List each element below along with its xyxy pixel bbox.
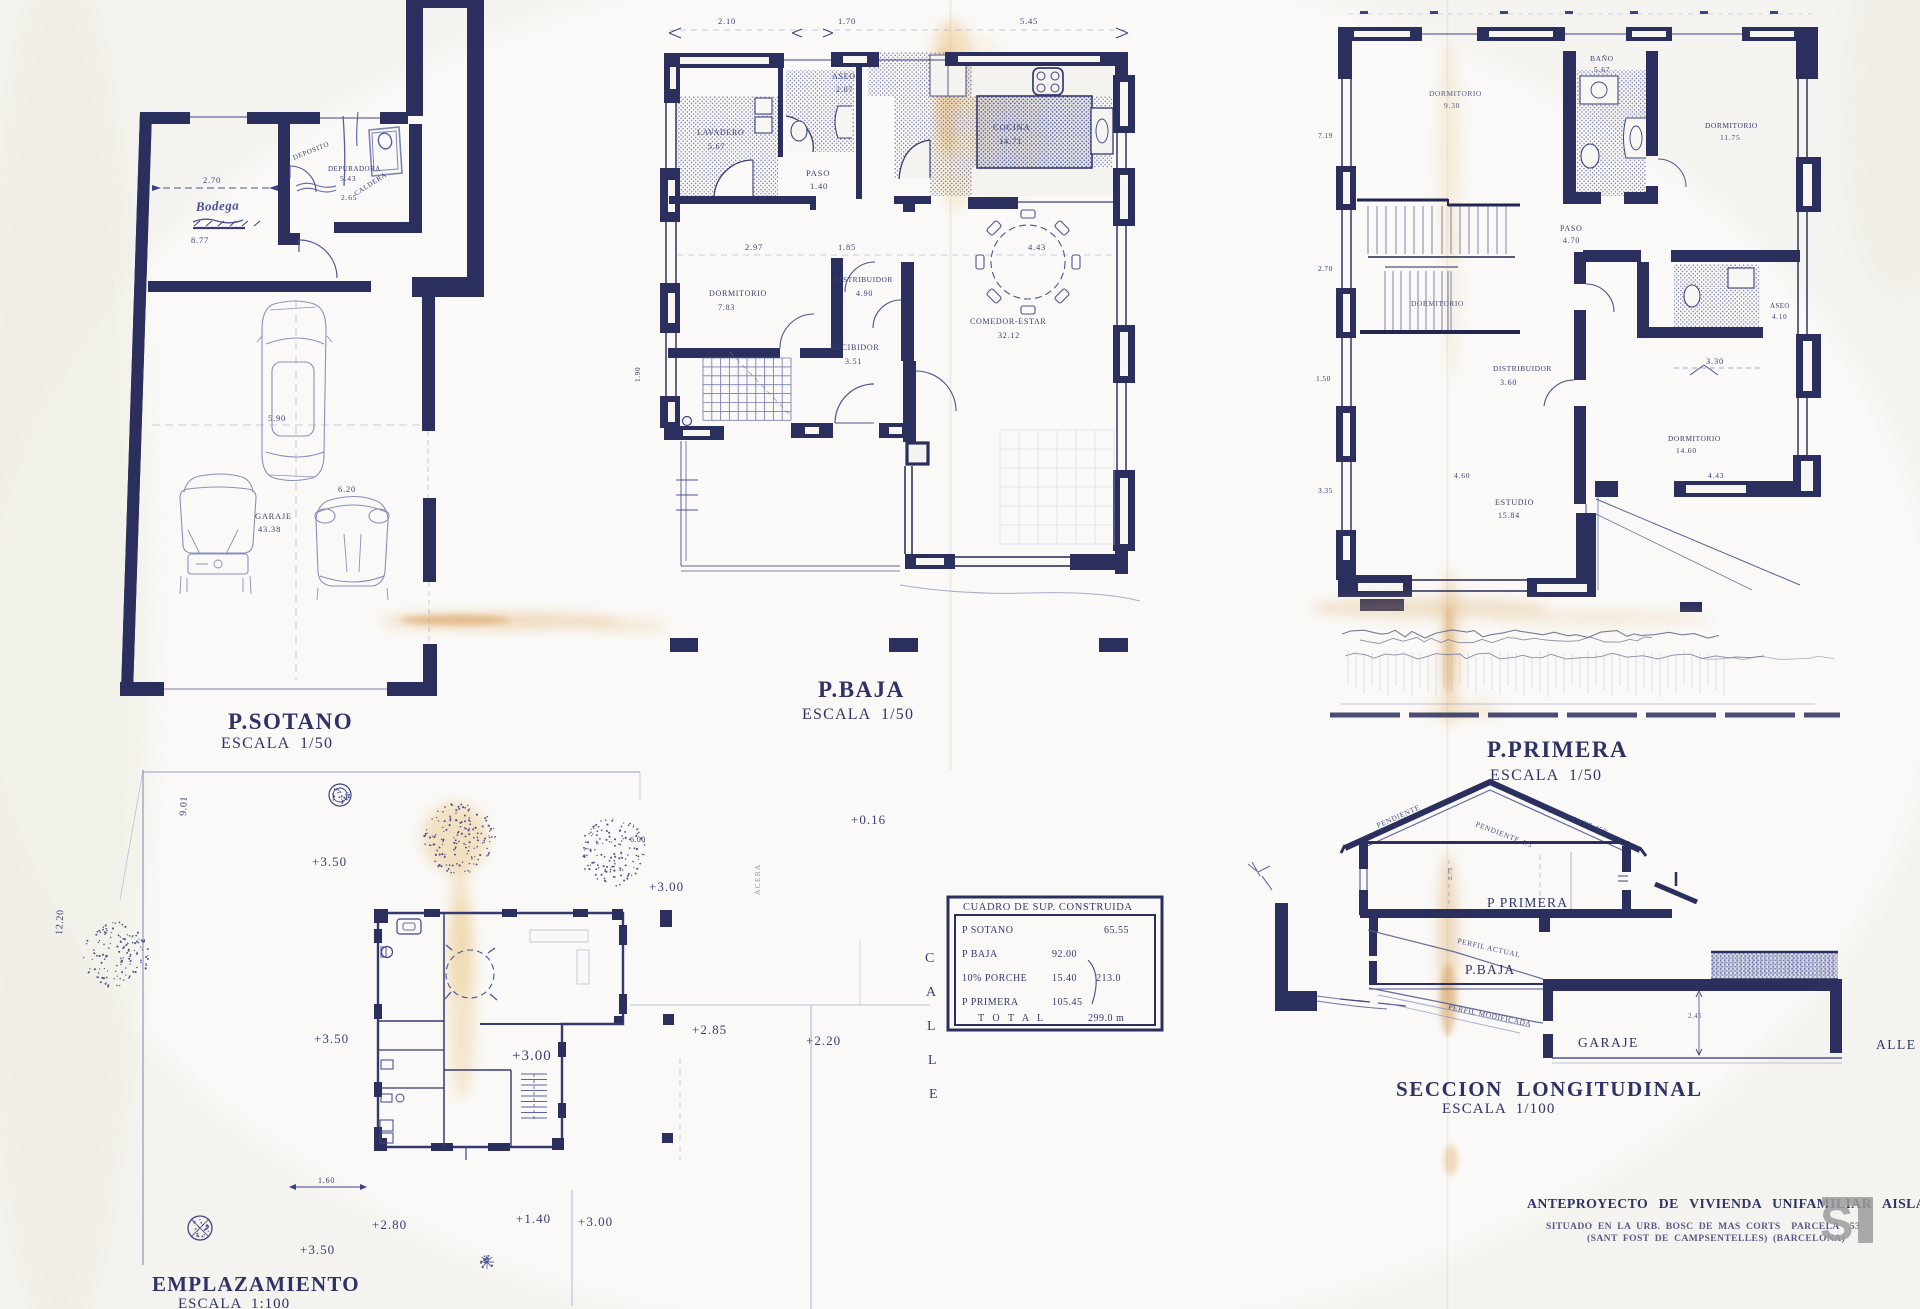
svg-text:4.43: 4.43: [1708, 471, 1724, 480]
svg-text:12.20: 12.20: [54, 909, 66, 935]
svg-text:LAVADERO: LAVADERO: [697, 128, 745, 137]
svg-text:11.75: 11.75: [1720, 133, 1741, 142]
svg-text:10% PORCHE: 10% PORCHE: [962, 973, 1027, 984]
svg-text:+3.50: +3.50: [312, 854, 347, 869]
svg-text:7.83: 7.83: [718, 303, 735, 312]
svg-text:DISTRIBUIDOR: DISTRIBUIDOR: [1493, 364, 1552, 373]
svg-text:1.85: 1.85: [838, 242, 856, 252]
svg-text:3.51: 3.51: [845, 357, 862, 366]
svg-text:14.60: 14.60: [1676, 446, 1697, 455]
svg-text:E: E: [929, 1087, 938, 1102]
svg-text:P.SOTANO: P.SOTANO: [228, 709, 353, 734]
svg-text:4.90: 4.90: [856, 289, 873, 298]
svg-text:ACERA: ACERA: [753, 864, 762, 895]
svg-text:DORMITORIO: DORMITORIO: [1411, 299, 1464, 308]
svg-text:+3.50: +3.50: [314, 1031, 349, 1046]
svg-text:ESCALA 1/50: ESCALA 1/50: [1490, 767, 1602, 784]
svg-text:3.30: 3.30: [1706, 356, 1724, 366]
svg-text:7.19: 7.19: [1318, 131, 1333, 140]
svg-text:5.67: 5.67: [708, 142, 725, 151]
svg-text:T O T A L: T O T A L: [978, 1013, 1046, 1024]
svg-text:L: L: [928, 1053, 937, 1068]
svg-text:COMEDOR-ESTAR: COMEDOR-ESTAR: [970, 317, 1046, 326]
svg-text:ESCALA 1:100: ESCALA 1:100: [178, 1296, 290, 1309]
svg-text:DISTRIBUIDOR: DISTRIBUIDOR: [834, 275, 893, 284]
svg-text:P SOTANO: P SOTANO: [962, 925, 1013, 936]
svg-text:+3.00: +3.00: [578, 1214, 613, 1229]
svg-text:SITUADO EN LA URB. BOSC DE MAS: SITUADO EN LA URB. BOSC DE MAS CORTS PAR…: [1546, 1221, 1860, 1232]
svg-text:ASEO: ASEO: [832, 72, 856, 81]
svg-text:+3.00: +3.00: [649, 879, 684, 894]
svg-text:A: A: [926, 985, 937, 1000]
svg-text:EMPLAZAMIENTO: EMPLAZAMIENTO: [152, 1272, 360, 1296]
svg-text:2.07: 2.07: [836, 85, 853, 94]
svg-text:213.0: 213.0: [1096, 973, 1121, 984]
svg-text:PASO: PASO: [1560, 224, 1583, 233]
svg-text:P PRIMERA: P PRIMERA: [962, 997, 1019, 1008]
svg-text:DORMITORIO: DORMITORIO: [1668, 434, 1721, 443]
svg-text:3.60: 3.60: [1500, 378, 1517, 387]
svg-text:ESCALA 1/50: ESCALA 1/50: [221, 735, 333, 752]
svg-text:DORMITORIO: DORMITORIO: [1705, 121, 1758, 130]
svg-text:4.70: 4.70: [1563, 236, 1580, 245]
svg-text:DORMITORIO: DORMITORIO: [709, 289, 767, 298]
svg-text:CUADRO DE SUP. CONSTRUIDA: CUADRO DE SUP. CONSTRUIDA: [963, 902, 1133, 913]
svg-text:105.45: 105.45: [1052, 997, 1083, 1008]
svg-text:DEPURADORA: DEPURADORA: [328, 165, 381, 173]
svg-text:Bodega: Bodega: [195, 197, 240, 214]
svg-text:RECIBIDOR: RECIBIDOR: [830, 343, 879, 352]
svg-text:1.50: 1.50: [1316, 374, 1331, 383]
svg-text:2.70: 2.70: [1318, 264, 1333, 273]
svg-text:2.45: 2.45: [1688, 1012, 1702, 1020]
svg-text:43.38: 43.38: [258, 524, 281, 534]
svg-text:ASEO: ASEO: [1770, 302, 1790, 310]
svg-text:2.65: 2.65: [341, 193, 357, 202]
svg-text:DORMITORIO: DORMITORIO: [1429, 89, 1482, 98]
svg-text:PASO: PASO: [806, 168, 830, 178]
svg-text:+2.80: +2.80: [372, 1217, 407, 1232]
svg-text:6.00: 6.00: [630, 835, 646, 844]
svg-text:C: C: [925, 951, 934, 966]
svg-text:ESCALA 1/50: ESCALA 1/50: [802, 706, 914, 723]
svg-text:1.60: 1.60: [318, 1176, 335, 1185]
svg-text:1.70: 1.70: [838, 16, 856, 26]
svg-text:9.01: 9.01: [178, 796, 190, 816]
svg-text:65.55: 65.55: [1104, 925, 1129, 936]
svg-text:+1.40: +1.40: [516, 1211, 551, 1226]
svg-text:15.84: 15.84: [1498, 511, 1520, 520]
svg-text:SECCION LONGITUDINAL: SECCION LONGITUDINAL: [1396, 1077, 1703, 1101]
svg-text:5.90: 5.90: [268, 413, 286, 423]
svg-text:+3.00: +3.00: [512, 1048, 552, 1064]
svg-text:6.20: 6.20: [338, 484, 356, 494]
svg-text:+2.20: +2.20: [806, 1033, 841, 1048]
svg-text:92.00: 92.00: [1052, 949, 1077, 960]
svg-text:ESCALA 1/100: ESCALA 1/100: [1442, 1101, 1555, 1117]
svg-text:8.77: 8.77: [191, 235, 209, 245]
svg-text:4.43: 4.43: [1028, 242, 1046, 252]
svg-text:+2.85: +2.85: [692, 1022, 727, 1037]
svg-text:BAÑO: BAÑO: [1590, 53, 1614, 63]
svg-text:P.BAJA: P.BAJA: [818, 677, 905, 702]
svg-text:4.10: 4.10: [1772, 313, 1787, 321]
svg-text:P BAJA: P BAJA: [962, 949, 998, 960]
svg-text:5.43: 5.43: [340, 174, 356, 183]
svg-text:1.40: 1.40: [810, 181, 828, 191]
svg-text:2.97: 2.97: [745, 242, 763, 252]
svg-text:299.0 m: 299.0 m: [1088, 1013, 1124, 1024]
svg-text:15.40: 15.40: [1052, 973, 1077, 984]
svg-text:GARAJE: GARAJE: [1578, 1035, 1639, 1050]
svg-text:5.45: 5.45: [1020, 16, 1038, 26]
svg-text:5.67: 5.67: [1594, 65, 1610, 74]
svg-text:4.60: 4.60: [1454, 471, 1470, 480]
svg-text:1.90: 1.90: [633, 367, 642, 382]
svg-text:ALLE: ALLE: [1876, 1037, 1917, 1052]
svg-text:32.12: 32.12: [998, 331, 1020, 340]
svg-text:2.75: 2.75: [1447, 867, 1454, 880]
svg-text:9.38: 9.38: [1444, 101, 1460, 110]
svg-text:P.BAJA: P.BAJA: [1465, 962, 1515, 977]
svg-text:COCINA: COCINA: [993, 122, 1030, 132]
svg-text:3.35: 3.35: [1318, 486, 1333, 495]
svg-text:2.10: 2.10: [718, 16, 736, 26]
svg-text:ESTUDIO: ESTUDIO: [1495, 498, 1534, 507]
svg-text:2.70: 2.70: [203, 175, 221, 185]
svg-text:L: L: [927, 1019, 936, 1034]
svg-text:P PRIMERA: P PRIMERA: [1487, 895, 1568, 910]
svg-text:+0.16: +0.16: [851, 812, 886, 827]
svg-text:14.71: 14.71: [999, 136, 1022, 146]
svg-text:(SANT FOST DE CAMPSENTELLES) (: (SANT FOST DE CAMPSENTELLES) (BARCELONA): [1587, 1233, 1845, 1244]
svg-text:+3.50: +3.50: [300, 1242, 335, 1257]
svg-text:GARAJE: GARAJE: [255, 511, 292, 521]
svg-text:P.PRIMERA: P.PRIMERA: [1487, 737, 1628, 762]
